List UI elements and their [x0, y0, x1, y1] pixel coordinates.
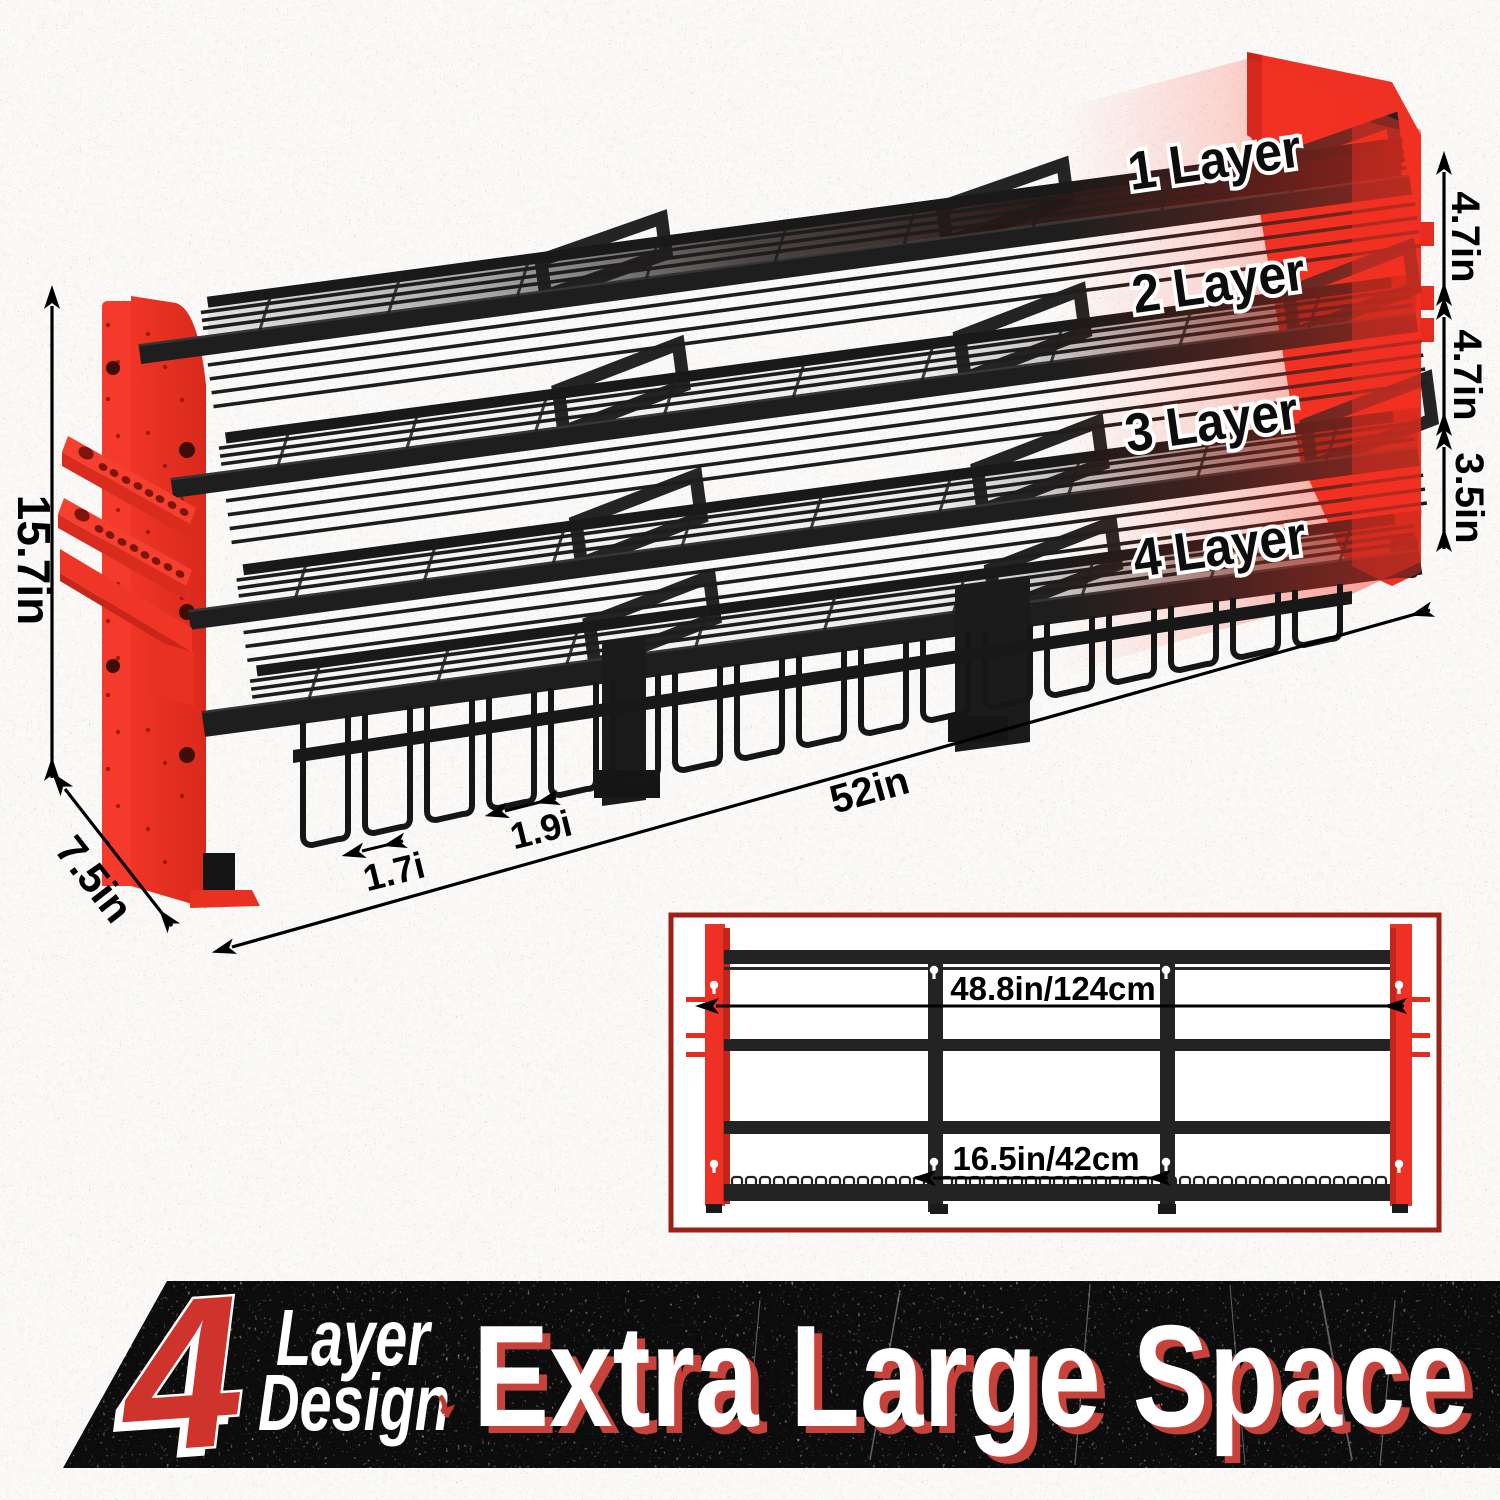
svg-text:Extra Large Space: Extra Large Space — [473, 1295, 1469, 1457]
svg-text:48.8in/124cm: 48.8in/124cm — [950, 970, 1155, 1007]
svg-text:3.5in: 3.5in — [1447, 452, 1491, 543]
svg-text:15.7in: 15.7in — [8, 495, 60, 625]
svg-text:4.7in: 4.7in — [1445, 329, 1489, 420]
svg-text:4.7in: 4.7in — [1443, 191, 1487, 282]
svg-text:4: 4 — [110, 1249, 250, 1498]
svg-text:Design: Design — [258, 1358, 450, 1448]
svg-text:16.5in/42cm: 16.5in/42cm — [952, 1140, 1139, 1177]
